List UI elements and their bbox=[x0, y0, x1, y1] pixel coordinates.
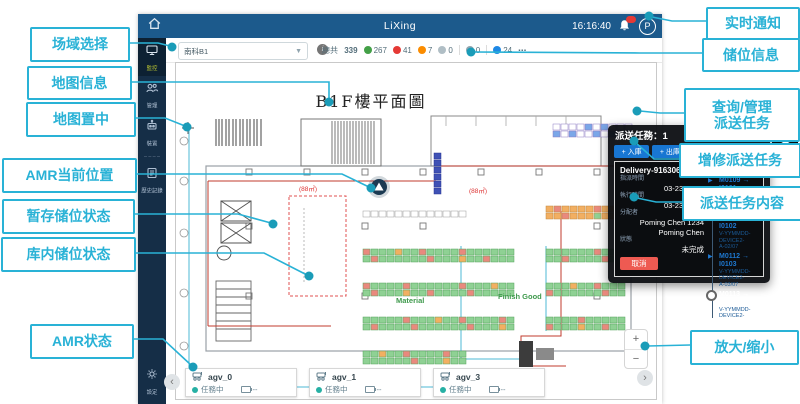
callout-map-center: 地图置中 bbox=[26, 102, 136, 137]
map-canvas[interactable]: B1F樓平面圖 bbox=[175, 62, 657, 400]
material-label: Material bbox=[396, 296, 424, 305]
battery-icon bbox=[365, 386, 375, 393]
agv-name: agv_1 bbox=[332, 372, 356, 382]
panel-title: 派送任務：1 bbox=[615, 128, 668, 142]
agv-card[interactable]: agv_0 任務中-- bbox=[185, 368, 297, 397]
callout-storage-info: 储位信息 bbox=[702, 38, 800, 72]
timeline-item[interactable]: ▶ M0112 → I0103 V-YYMMDD-DEVICE2- A-03/0… bbox=[719, 253, 758, 289]
row-value: Poming Chen bbox=[620, 228, 704, 237]
stat-blue[interactable]: 24 bbox=[493, 46, 512, 55]
battery-icon bbox=[489, 386, 499, 393]
sidebar-item-settings[interactable]: 設定 bbox=[138, 367, 166, 396]
agv-name: agv_0 bbox=[208, 372, 232, 382]
screenshot-root: LiXing 16:16:40 P 監控 管理 裝置 bbox=[0, 0, 800, 404]
history-icon bbox=[145, 166, 159, 185]
sidebar-item-label: 管理 bbox=[147, 101, 158, 109]
area-label: (88㎡) bbox=[469, 186, 487, 195]
stat-other[interactable]: 0 bbox=[466, 46, 480, 55]
agv-status: 任務中 bbox=[325, 384, 348, 395]
sidebar-item-label: 歷史記錄 bbox=[141, 186, 163, 194]
stats-divider bbox=[459, 45, 460, 55]
play-marker-icon: ▶ bbox=[708, 253, 713, 261]
agv-card[interactable]: agv_1 任務中-- bbox=[309, 368, 421, 397]
callout-add-modify-tasks: 增修派送任务 bbox=[679, 143, 800, 178]
storage-stats: 總共 339 267 41 7 0 0 24 ⋯ bbox=[322, 38, 527, 62]
green-dot-icon bbox=[364, 46, 372, 54]
sidebar-item-device[interactable]: 裝置 bbox=[138, 114, 166, 152]
row-value: 未完成 bbox=[620, 245, 704, 254]
topbar-right: 16:16:40 P bbox=[572, 14, 656, 38]
stats-divider bbox=[486, 45, 487, 55]
sidebar: 監控 管理 裝置 歷史記錄 設定 bbox=[138, 38, 166, 404]
map-center-cross bbox=[182, 122, 194, 134]
current-step-marker-icon bbox=[706, 290, 717, 301]
gray-dot-icon bbox=[466, 46, 474, 54]
status-dot-icon bbox=[192, 387, 198, 393]
callout-temp-storage-status: 暂存储位状态 bbox=[2, 199, 135, 234]
stat-disabled[interactable]: 0 bbox=[438, 46, 452, 55]
row-label: 狀態 bbox=[620, 237, 704, 245]
zoom-out-button[interactable]: − bbox=[625, 350, 647, 369]
add-inbound-button[interactable]: + 入庫 bbox=[614, 145, 649, 158]
callout-map-info: 地图信息 bbox=[27, 66, 132, 100]
callout-warehouse-storage-status: 库内储位状态 bbox=[1, 237, 136, 272]
gray-dot-icon bbox=[438, 46, 446, 54]
agv-bar-prev-button[interactable]: ‹ bbox=[164, 374, 180, 390]
callout-task-content: 派送任务内容 bbox=[682, 186, 800, 221]
stat-reserved[interactable]: 7 bbox=[418, 46, 432, 55]
monitor-icon bbox=[145, 43, 159, 62]
agv-icon bbox=[192, 371, 204, 383]
zoom-in-button[interactable]: + bbox=[625, 330, 647, 350]
amr-marker[interactable] bbox=[368, 176, 390, 198]
agv-icon bbox=[316, 371, 328, 383]
red-dot-icon bbox=[393, 46, 401, 54]
area-label: (88㎡) bbox=[299, 184, 317, 193]
agv-status: 任務中 bbox=[449, 384, 472, 395]
notification-bell-icon[interactable] bbox=[618, 19, 632, 33]
callout-query-manage-tasks: 查询/管理派送任务 bbox=[684, 88, 800, 142]
toolbar: 南科B1 ▼ i 總共 339 267 41 7 0 0 24 ⋯ bbox=[166, 38, 662, 63]
storage-racks bbox=[363, 124, 632, 364]
callout-zoom: 放大/缩小 bbox=[690, 330, 799, 365]
chevron-down-icon: ▼ bbox=[295, 48, 302, 55]
stats-total: 總共 339 bbox=[322, 45, 358, 56]
sidebar-item-history[interactable]: 歷史記錄 bbox=[138, 161, 166, 199]
sidebar-item-label: 監控 bbox=[147, 63, 158, 71]
robot-icon bbox=[145, 119, 159, 138]
agv-battery: -- bbox=[253, 385, 258, 394]
user-avatar[interactable]: P bbox=[639, 18, 656, 35]
site-select[interactable]: 南科B1 ▼ bbox=[178, 42, 308, 60]
status-dot-icon bbox=[316, 387, 322, 393]
agv-status: 任務中 bbox=[201, 384, 224, 395]
map-title: B1F樓平面圖 bbox=[315, 92, 426, 111]
agv-name: agv_3 bbox=[456, 372, 480, 382]
more-icon[interactable]: ⋯ bbox=[518, 46, 527, 55]
gear-icon bbox=[145, 367, 159, 386]
notification-badge bbox=[626, 16, 636, 23]
sidebar-item-monitor[interactable]: 監控 bbox=[138, 38, 166, 76]
site-select-value: 南科B1 bbox=[184, 46, 208, 57]
blue-dot-icon bbox=[493, 46, 501, 54]
battery-icon bbox=[241, 386, 251, 393]
users-icon bbox=[145, 81, 159, 100]
app-window: LiXing 16:16:40 P 監控 管理 裝置 bbox=[138, 14, 662, 404]
play-marker-icon: ▶ bbox=[708, 177, 713, 185]
sidebar-item-label: 裝置 bbox=[147, 139, 158, 147]
stat-available[interactable]: 267 bbox=[364, 46, 387, 55]
callout-realtime-notification: 实时通知 bbox=[706, 7, 800, 40]
sidebar-divider bbox=[144, 156, 160, 157]
agv-bar-next-button[interactable]: › bbox=[637, 370, 653, 386]
floor-plan: B1F樓平面圖 bbox=[176, 63, 656, 399]
temp-storage-zone bbox=[289, 196, 346, 296]
sidebar-item-manage[interactable]: 管理 bbox=[138, 76, 166, 114]
agv-icon bbox=[440, 371, 452, 383]
agv-card[interactable]: agv_3 任務中-- bbox=[433, 368, 545, 397]
orange-dot-icon bbox=[418, 46, 426, 54]
timeline-item-current[interactable]: M0113 → I0104 V-YYMMDD-DEVICE2- bbox=[719, 291, 758, 320]
sidebar-item-label: 設定 bbox=[147, 387, 158, 395]
clock-time: 16:16:40 bbox=[572, 21, 611, 32]
stat-occupied[interactable]: 41 bbox=[393, 46, 412, 55]
top-bar: LiXing 16:16:40 P bbox=[138, 14, 662, 38]
agv-battery: -- bbox=[377, 385, 382, 394]
zoom-control: + − bbox=[624, 329, 648, 369]
callout-amr-status: AMR状态 bbox=[30, 324, 134, 359]
callout-field-select: 场域选择 bbox=[30, 27, 130, 62]
finish-good-label: Finish Good bbox=[498, 292, 542, 301]
callout-amr-position: AMR当前位置 bbox=[2, 158, 137, 193]
agv-battery: -- bbox=[501, 385, 506, 394]
status-dot-icon bbox=[440, 387, 446, 393]
cancel-button[interactable]: 取消 bbox=[620, 257, 658, 270]
